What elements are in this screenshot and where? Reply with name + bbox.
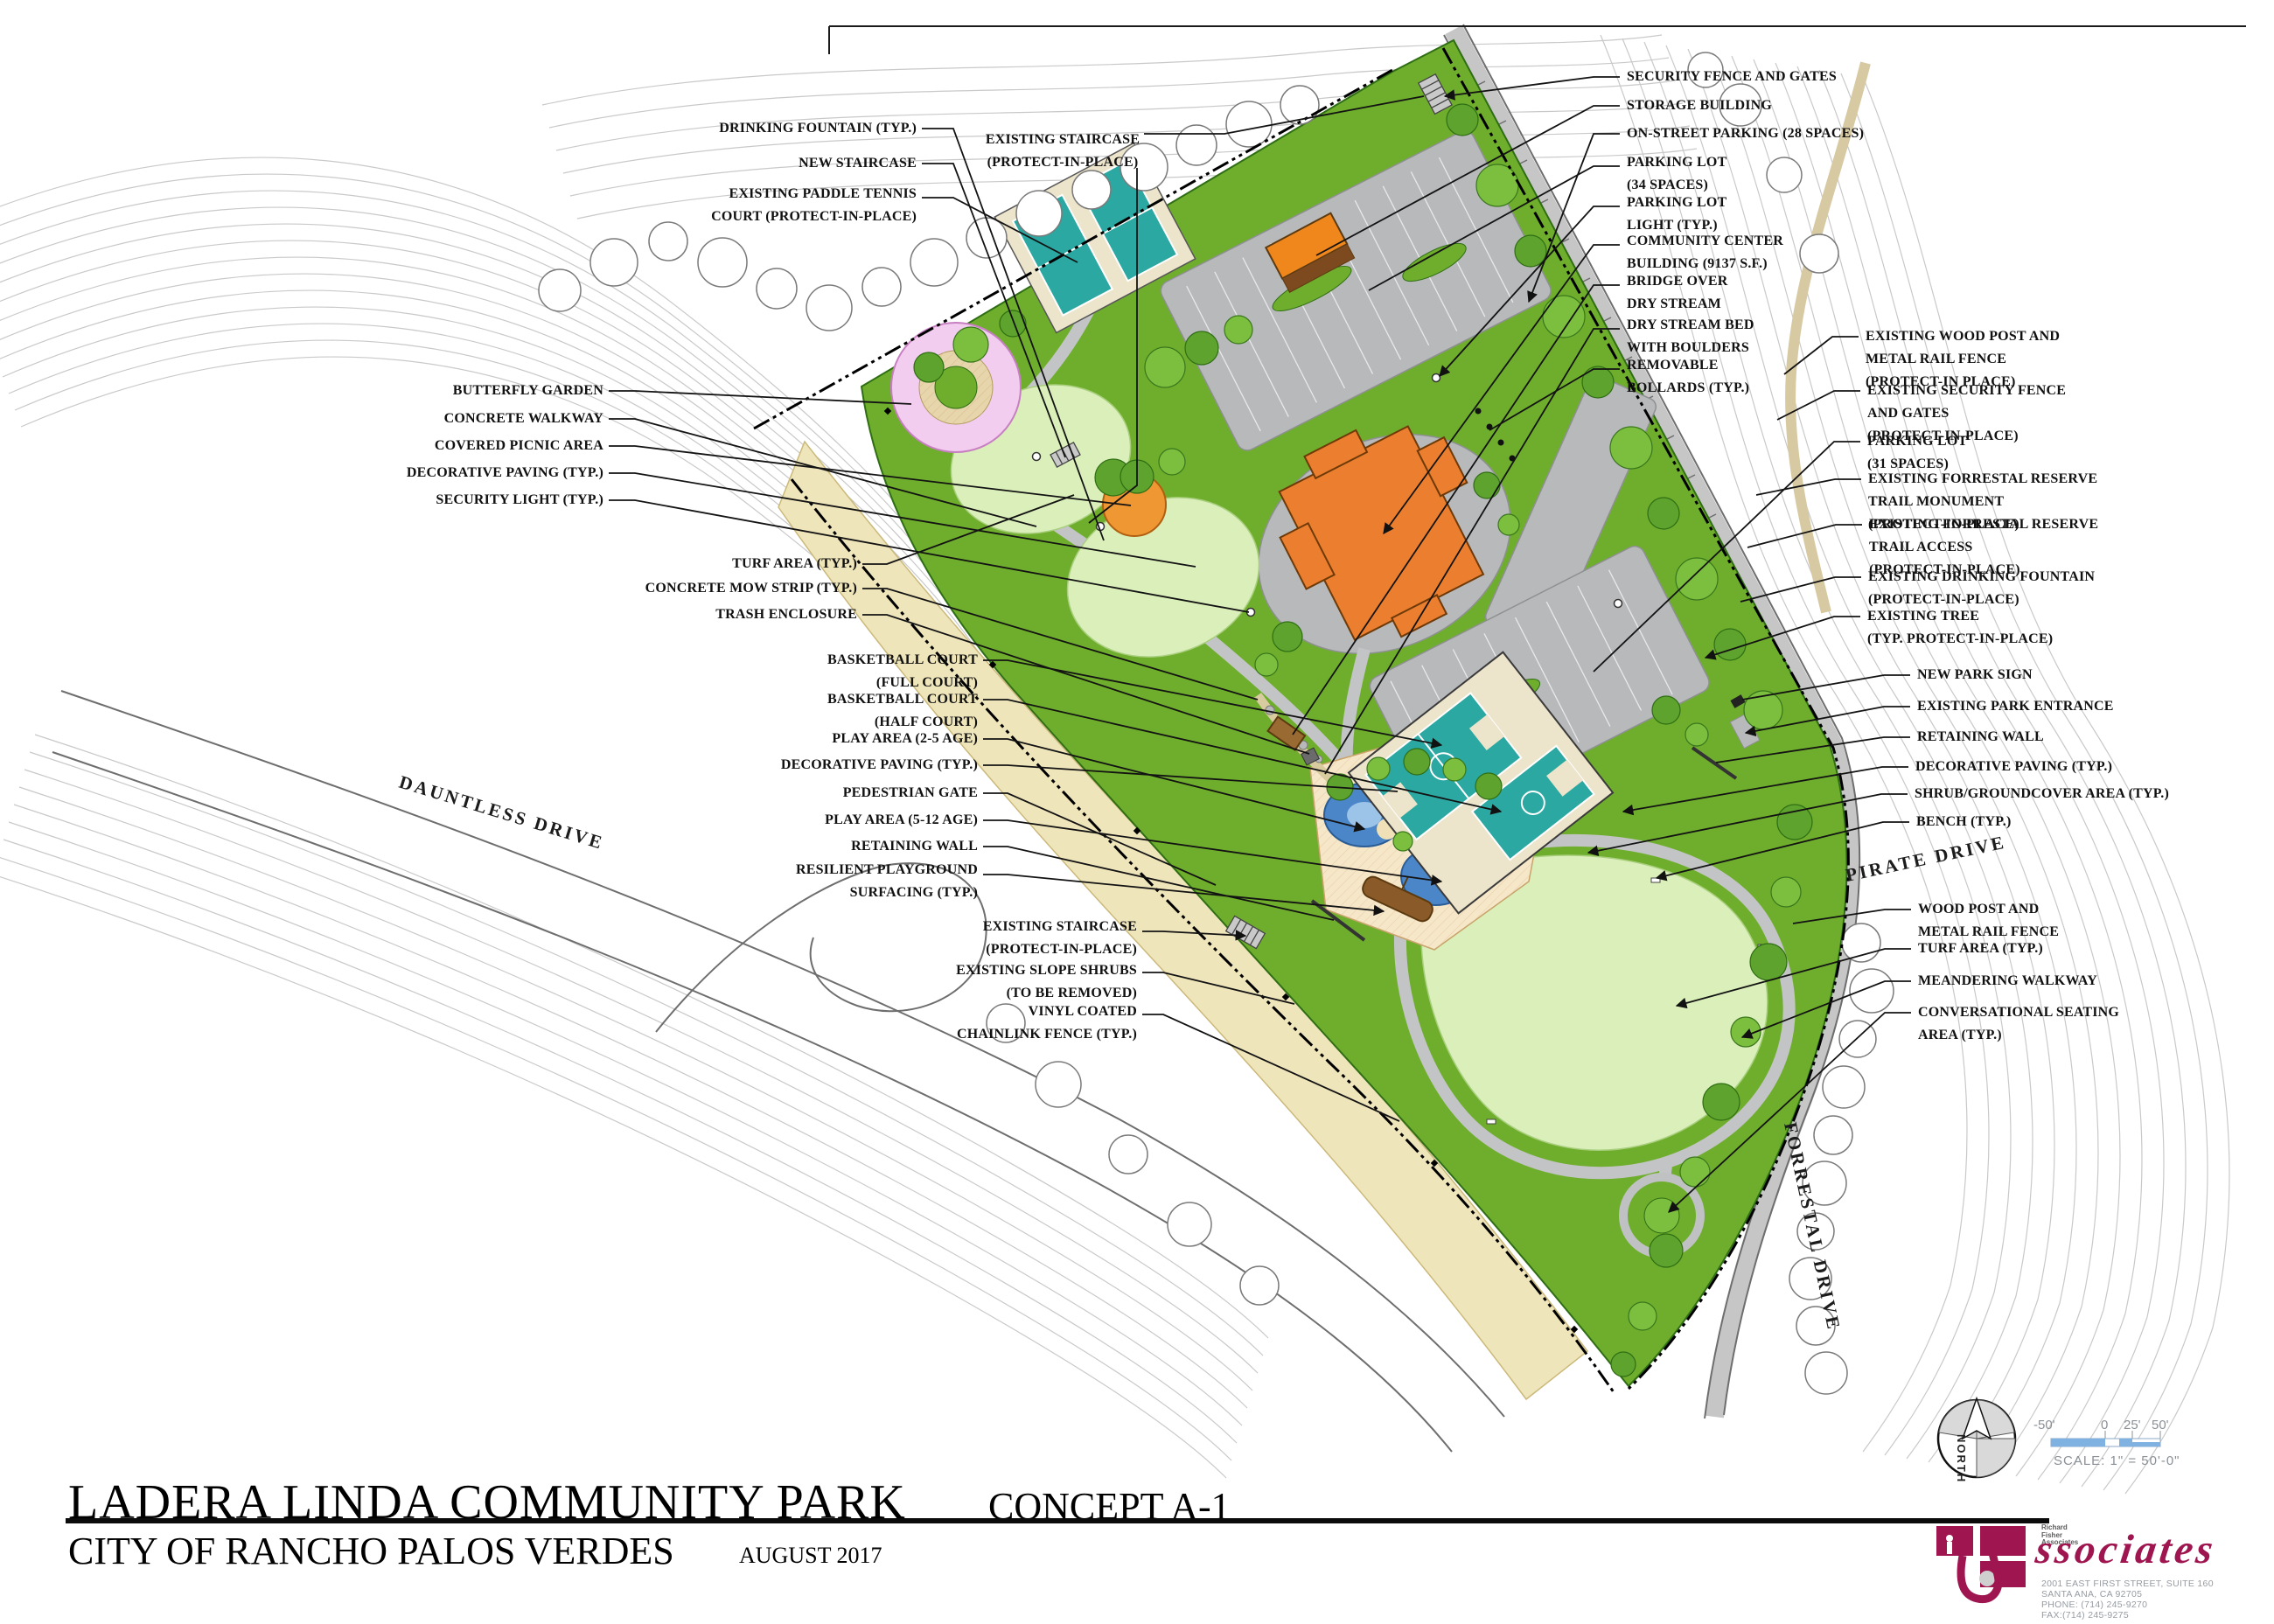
callout-retaining-wall-right: RETAINING WALL [1917, 726, 2044, 749]
firm-logo: Richard Fisher Associates ssociates 2001… [1935, 1524, 2272, 1621]
callout-community-center: COMMUNITY CENTER BUILDING (9137 S.F.) [1627, 230, 1783, 275]
callout-on-street-parking: ON-STREET PARKING (28 SPACES) [1627, 122, 1864, 145]
scale-zero-label: 0 [2101, 1418, 2108, 1432]
callout-decorative-paving-right: DECORATIVE PAVING (TYP.) [1915, 756, 2112, 778]
callout-covered-picnic-area: COVERED PICNIC AREA [435, 435, 603, 457]
scale-bar: -50' 0 25' 50' SCALE: 1" = 50'-0" [2033, 1418, 2180, 1468]
callout-drinking-fountain: DRINKING FOUNTAIN (TYP.) [719, 117, 917, 140]
callout-slope-shrubs: EXISTING SLOPE SHRUBS (TO BE REMOVED) [956, 959, 1137, 1005]
callout-security-fence-gates: SECURITY FENCE AND GATES [1627, 66, 1837, 88]
scale-neg-label: -50' [2033, 1418, 2055, 1432]
scale-25-label: 25' [2124, 1418, 2141, 1432]
callout-turf-area-right: TURF AREA (TYP.) [1918, 937, 2043, 960]
callout-meandering-walkway: MEANDERING WALKWAY [1918, 970, 2097, 993]
callout-play-area-2-5: PLAY AREA (2-5 AGE) [832, 728, 978, 750]
callout-new-park-sign: NEW PARK SIGN [1917, 664, 2033, 687]
callout-security-light: SECURITY LIGHT (TYP.) [436, 489, 603, 512]
callout-existing-staircase-lower: EXISTING STAIRCASE (PROTECT-IN-PLACE) [983, 916, 1137, 961]
callout-decorative-paving-left2: DECORATIVE PAVING (TYP.) [781, 754, 978, 777]
callout-paddle-tennis: EXISTING PADDLE TENNIS COURT (PROTECT-IN… [711, 183, 917, 228]
callout-parking-lot-34: PARKING LOT (34 SPACES) [1627, 151, 1726, 197]
callout-shrub-groundcover: SHRUB/GROUNDCOVER AREA (TYP.) [1915, 783, 2169, 805]
north-arrow: NORTH [1938, 1398, 2015, 1483]
callout-existing-staircase-top: EXISTING STAIRCASE (PROTECT-IN-PLACE) [984, 129, 1141, 174]
logo-address: 2001 EAST FIRST STREET, SUITE 160 SANTA … [2041, 1579, 2214, 1621]
callout-storage-building: STORAGE BUILDING [1627, 94, 1772, 117]
callout-new-staircase: NEW STAIRCASE [799, 152, 917, 175]
callout-existing-tree: EXISTING TREE (TYP. PROTECT-IN-PLACE) [1867, 605, 2053, 651]
callout-vinyl-chainlink-fence: VINYL COATED CHAINLINK FENCE (TYP.) [957, 1000, 1137, 1046]
logo-script-text: ssociates [2033, 1526, 2219, 1573]
callout-pedestrian-gate: PEDESTRIAN GATE [843, 782, 978, 805]
callout-dry-stream-bed: DRY STREAM BED WITH BOULDERS [1627, 314, 1754, 359]
callout-removable-bollards: REMOVABLE BOLLARDS (TYP.) [1627, 354, 1749, 400]
callout-decorative-paving-left: DECORATIVE PAVING (TYP.) [407, 462, 603, 484]
callout-trash-enclosure: TRASH ENCLOSURE [715, 603, 857, 626]
callout-butterfly-garden: BUTTERFLY GARDEN [453, 380, 603, 402]
street-label-dauntless: DAUNTLESS DRIVE [397, 771, 607, 854]
callout-existing-park-entrance: EXISTING PARK ENTRANCE [1917, 695, 2114, 718]
title-rule [66, 1518, 2049, 1523]
callout-retaining-wall-left: RETAINING WALL [851, 835, 978, 858]
agency-title: CITY OF RANCHO PALOS VERDES [68, 1529, 674, 1573]
callout-concrete-mow-strip: CONCRETE MOW STRIP (TYP.) [645, 577, 857, 600]
callout-turf-area-left: TURF AREA (TYP.) [732, 553, 857, 575]
site-plan-sheet: DAUNTLESS DRIVE PIRATE DRIVE FORRESTAL D… [0, 0, 2274, 1624]
scale-caption: SCALE: 1" = 50'-0" [2054, 1453, 2180, 1468]
rfa-logo-mark [1935, 1524, 2035, 1607]
callout-conversational-seating: CONVERSATIONAL SEATING AREA (TYP.) [1918, 1001, 2119, 1047]
callout-bridge-dry-stream: BRIDGE OVER DRY STREAM [1627, 270, 1728, 316]
callout-play-area-5-12: PLAY AREA (5-12 AGE) [825, 809, 978, 832]
scale-50-label: 50' [2152, 1418, 2169, 1432]
callout-bench: BENCH (TYP.) [1916, 811, 2012, 833]
callout-resilient-surfacing: RESILIENT PLAYGROUND SURFACING (TYP.) [796, 859, 978, 904]
north-label: NORTH [1955, 1434, 1968, 1483]
sheet-date: AUGUST 2017 [739, 1543, 882, 1569]
callout-concrete-walkway: CONCRETE WALKWAY [444, 408, 603, 430]
street-label-pirate: PIRATE DRIVE [1844, 832, 2008, 886]
